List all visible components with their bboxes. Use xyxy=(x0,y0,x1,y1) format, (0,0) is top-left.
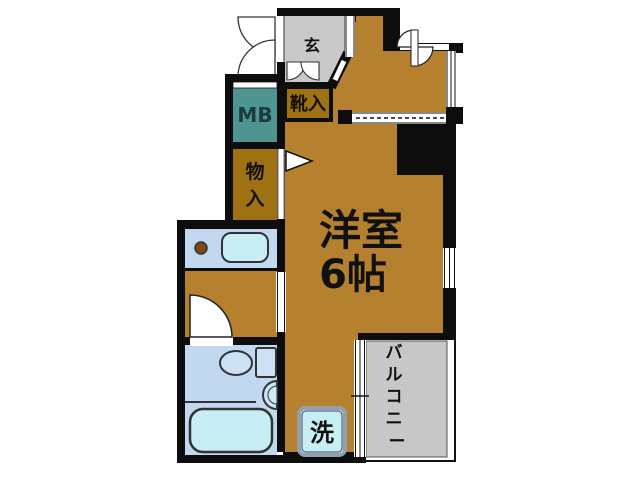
wall-mb-top xyxy=(225,74,285,82)
wall-mb-divider xyxy=(233,142,277,149)
wall-window-corner xyxy=(446,107,463,124)
floor-plan-page: 玄 MB 靴入 物 入 洋室 6帖 洗 バ ル コ ニ ー xyxy=(0,0,640,480)
pipe-shaft xyxy=(397,124,456,175)
entrance-label: 玄 xyxy=(304,36,320,55)
wall-balcony-top xyxy=(358,333,443,340)
meter-box-label: MB xyxy=(237,103,272,127)
wall-top xyxy=(277,8,391,16)
closet-label-2: 入 xyxy=(245,188,264,210)
entrance-door-swings xyxy=(238,17,275,77)
swing-door-leaf xyxy=(411,30,418,66)
wall-column-bottom xyxy=(177,220,285,229)
line-washroom-hall xyxy=(185,268,277,271)
wall-left-column xyxy=(277,62,285,452)
washroom-knob xyxy=(195,242,207,254)
main-room-name: 洋室 xyxy=(319,206,403,255)
shoe-cabinet-label: 靴入 xyxy=(290,93,326,115)
washer-label: 洗 xyxy=(310,419,334,447)
meter-box-door xyxy=(233,82,277,88)
wall-genkan-shoe-line xyxy=(284,82,332,87)
bathtub xyxy=(190,409,272,452)
balcony-label: バ ル コ ニ ー xyxy=(386,343,409,452)
toilet-bowl xyxy=(220,351,252,375)
wall-bath-bottom xyxy=(177,455,290,463)
toilet-tank xyxy=(256,348,276,377)
floor-plan: 玄 MB 靴入 物 入 洋室 6帖 洗 バ ル コ ニ ー xyxy=(0,0,640,480)
main-room-size: 6帖 xyxy=(319,252,387,298)
wall-band-left-block xyxy=(338,110,352,124)
wall-mb-left xyxy=(225,74,233,228)
entrance-door-arc-lower xyxy=(238,40,275,77)
washroom-sink xyxy=(222,233,268,262)
closet-label-1: 物 xyxy=(245,160,264,183)
